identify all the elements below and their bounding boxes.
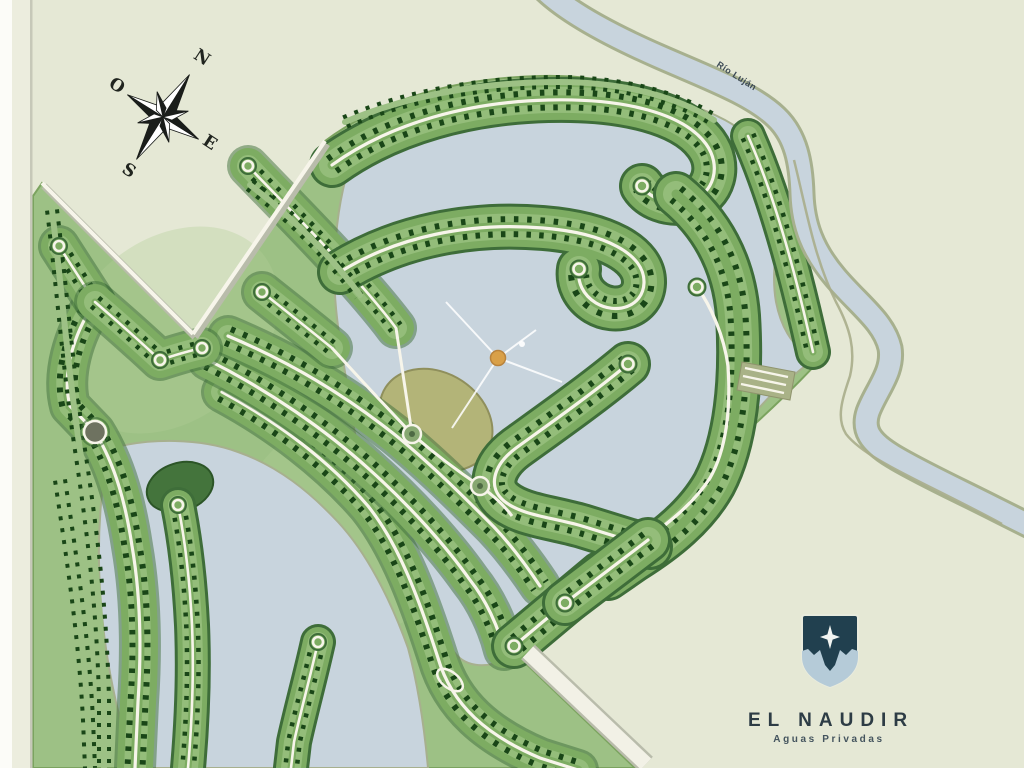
lot-band-finger bbox=[178, 505, 193, 768]
masterplan-map: Río Luján N O E S bbox=[0, 0, 1024, 768]
brand-name: EL NAUDIR bbox=[748, 710, 914, 731]
plan-svg: Río Luján N O E S bbox=[0, 0, 1024, 768]
map-margin bbox=[0, 0, 33, 768]
logo-shield bbox=[802, 615, 858, 687]
brand-subtitle: Aguas Privadas bbox=[773, 734, 884, 745]
